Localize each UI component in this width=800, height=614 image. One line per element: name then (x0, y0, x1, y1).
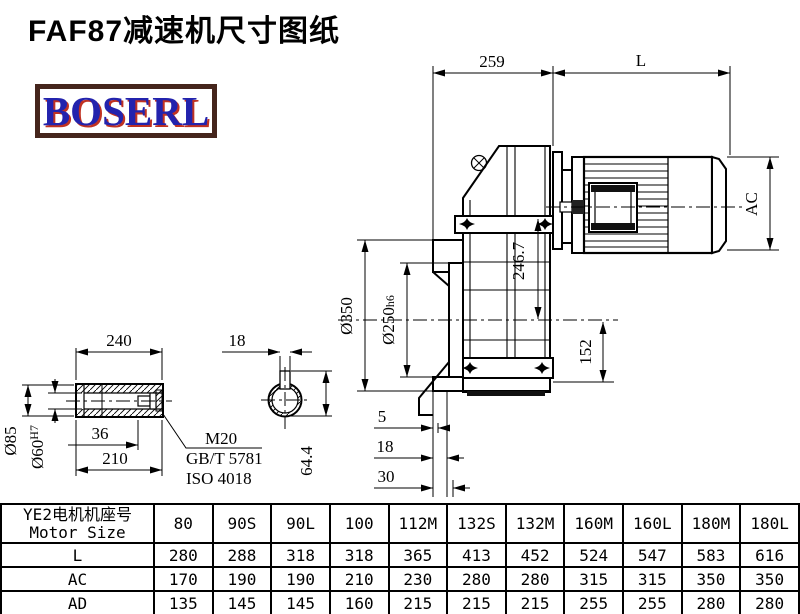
column-header: 100 (330, 504, 389, 543)
motor (546, 152, 742, 253)
table-row: L 280 288 318 318 365 413 452 524 547 58… (1, 543, 799, 567)
dim-key-depth: 64.4 (297, 446, 316, 476)
dim-shaft-od: Ø85 (1, 426, 20, 455)
table-cell: 413 (447, 543, 506, 567)
column-header: 180L (740, 504, 799, 543)
dim-flange-offset-3: 30 (378, 467, 395, 486)
table-cell: 210 (330, 567, 389, 591)
dim-bore-diameter: Ø60H7 (27, 425, 47, 469)
table-cell: 215 (506, 591, 565, 614)
table-cell: 452 (506, 543, 565, 567)
table-cell: 318 (330, 543, 389, 567)
table-cell: 547 (623, 543, 682, 567)
table-cell: 170 (154, 567, 213, 591)
row-label: AC (1, 567, 154, 591)
column-header: 132M (506, 504, 565, 543)
column-header: 80 (154, 504, 213, 543)
table-cell: 190 (213, 567, 272, 591)
table-cell: 190 (271, 567, 330, 591)
table-cell: 280 (682, 591, 741, 614)
shaft-detail-view: 240 Ø85 Ø60H7 36 (1, 331, 263, 488)
dim-axis-height: 246.7 (509, 241, 528, 280)
dim-bolt-depth: 36 (92, 424, 109, 443)
table-header-en: Motor Size (2, 524, 153, 542)
dim-flange-offset-1: 5 (378, 407, 387, 426)
table-cell: 160 (330, 591, 389, 614)
table-cell: 215 (389, 591, 448, 614)
row-label: L (1, 543, 154, 567)
page: FAF87减速机尺寸图纸 BOSERL (0, 0, 800, 614)
column-header: 90S (213, 504, 272, 543)
table-cell: 280 (740, 591, 799, 614)
table-cell: 350 (740, 567, 799, 591)
table-cell: 524 (564, 543, 623, 567)
note-bolt-standard-2: ISO 4018 (186, 469, 252, 488)
column-header: 160M (564, 504, 623, 543)
technical-drawing: 259 L AC Ø350 (0, 0, 800, 503)
table-cell: 280 (447, 567, 506, 591)
dim-flange-offset-2: 18 (377, 437, 394, 456)
dim-hub-length: 210 (102, 449, 128, 468)
column-header: 160L (623, 504, 682, 543)
table-cell: 230 (389, 567, 448, 591)
table-cell: 365 (389, 543, 448, 567)
row-label: AD (1, 591, 154, 614)
table-cell: 583 (682, 543, 741, 567)
table-cell: 145 (213, 591, 272, 614)
dim-key-width: 18 (229, 331, 246, 350)
note-bolt-spec: M20 (205, 429, 237, 448)
table-header-cn: YE2电机机座号 (2, 506, 153, 524)
column-header: 132S (447, 504, 506, 543)
table-cell: 616 (740, 543, 799, 567)
table-row: AD 135 145 145 160 215 215 215 255 255 2… (1, 591, 799, 614)
table-header-motor-size: YE2电机机座号 Motor Size (1, 504, 154, 543)
table-cell: 350 (682, 567, 741, 591)
dim-motor-diameter: AC (742, 192, 761, 216)
motor-size-table: YE2电机机座号 Motor Size 80 90S 90L 100 112M … (0, 503, 800, 614)
table-cell: 215 (447, 591, 506, 614)
table-cell: 255 (564, 591, 623, 614)
table-cell: 255 (623, 591, 682, 614)
dim-housing-width: 259 (479, 52, 505, 71)
bolt-hole-icon (472, 156, 487, 171)
dim-shaft-length: 240 (106, 331, 132, 350)
table-cell: 288 (213, 543, 272, 567)
table-cell: 315 (564, 567, 623, 591)
table-row: AC 170 190 190 210 230 280 280 315 315 3… (1, 567, 799, 591)
dim-foot-height: 152 (576, 339, 595, 365)
table-cell: 318 (271, 543, 330, 567)
dimensions-main-view: 259 L AC Ø350 (337, 51, 779, 488)
note-bolt-standard-1: GB/T 5781 (186, 449, 263, 468)
table-cell: 280 (506, 567, 565, 591)
table-cell: 280 (154, 543, 213, 567)
table-cell: 315 (623, 567, 682, 591)
table-header-row: YE2电机机座号 Motor Size 80 90S 90L 100 112M … (1, 504, 799, 543)
dim-motor-length: L (636, 51, 646, 70)
table-cell: 145 (271, 591, 330, 614)
column-header: 90L (271, 504, 330, 543)
table-cell: 135 (154, 591, 213, 614)
column-header: 112M (389, 504, 448, 543)
dim-flange-od: Ø350 (337, 297, 356, 335)
column-header: 180M (682, 504, 741, 543)
